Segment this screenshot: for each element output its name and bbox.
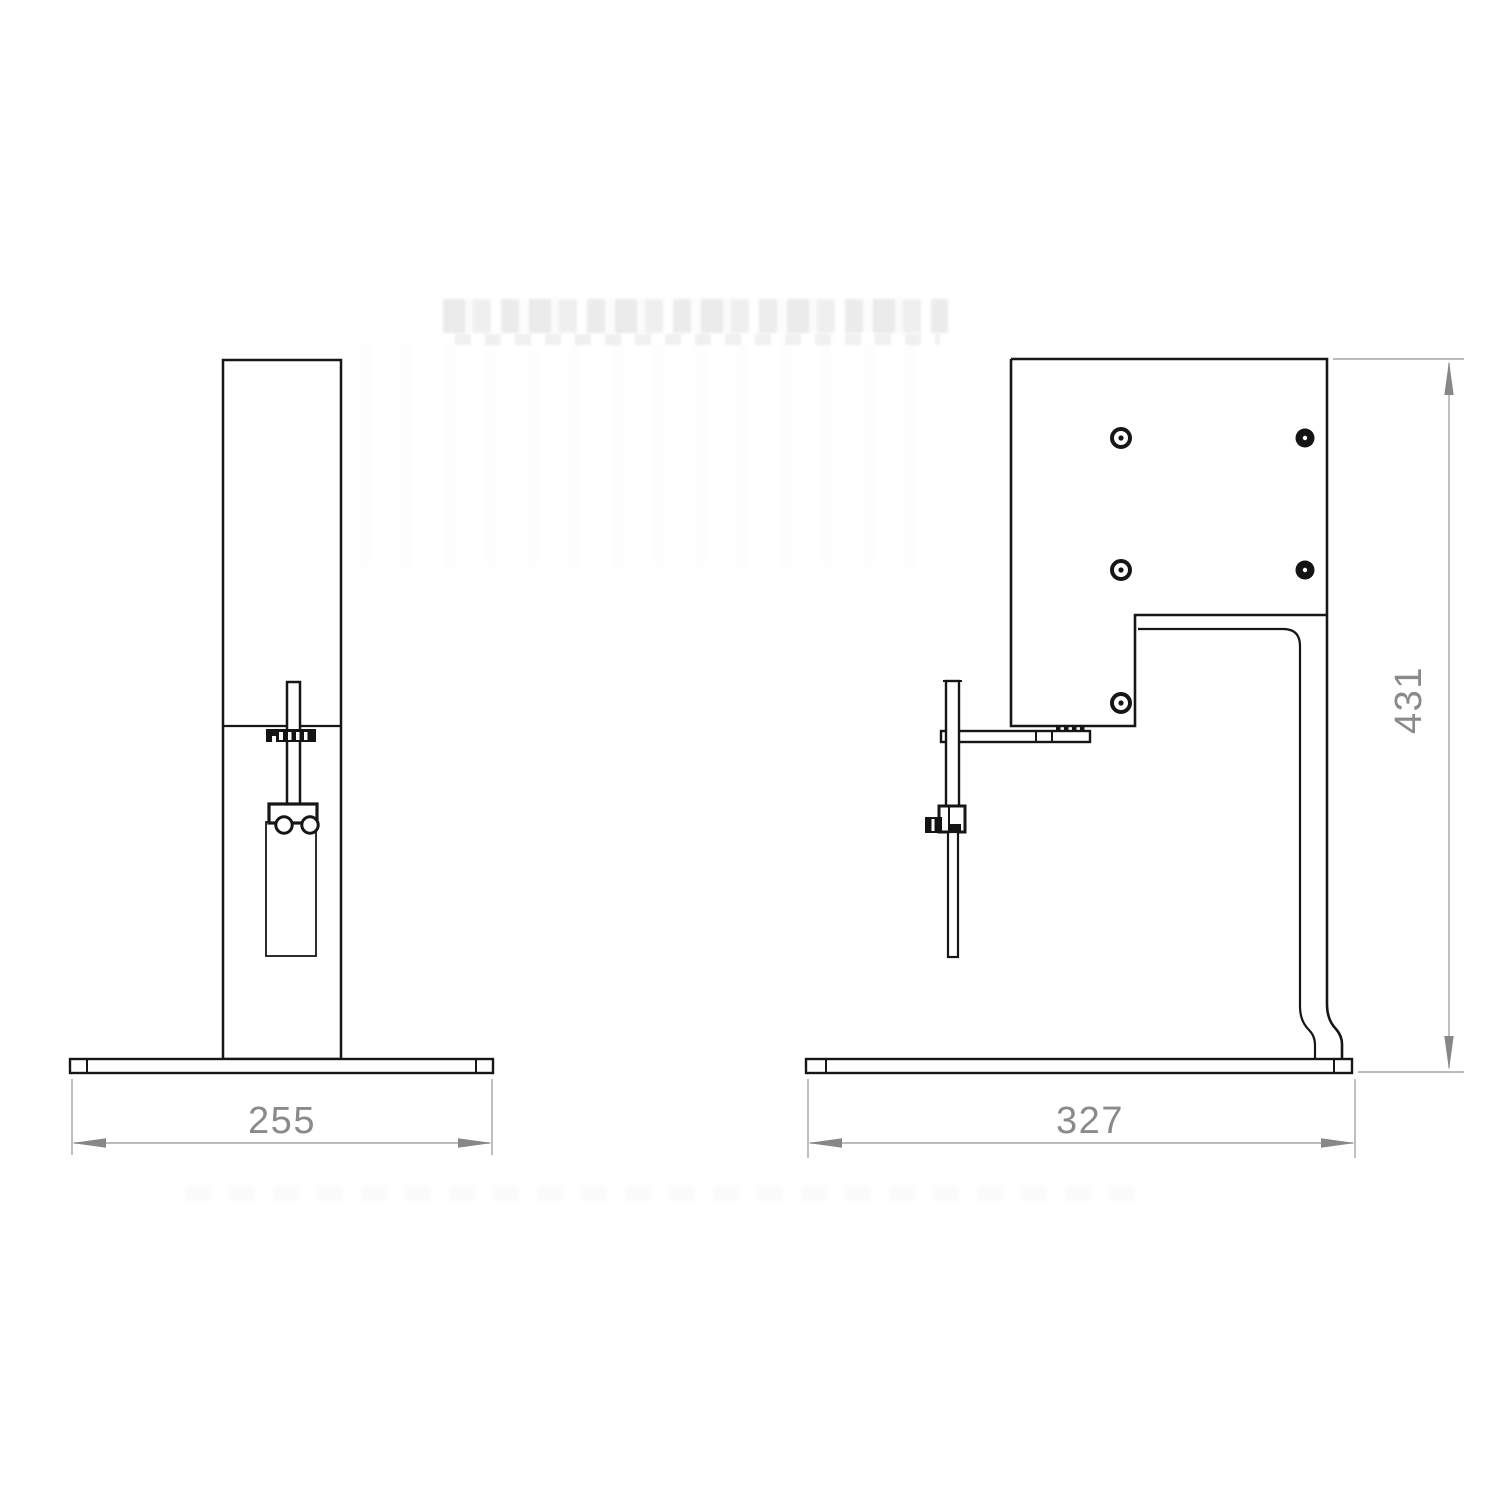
arrow-down-icon bbox=[1444, 1036, 1453, 1070]
front-base-plate bbox=[70, 1059, 493, 1073]
dimension-label-327: 327 bbox=[1056, 1100, 1124, 1142]
side-arm bbox=[941, 730, 1090, 742]
arrow-up-icon bbox=[1444, 361, 1453, 395]
front-specimen bbox=[266, 822, 316, 956]
drawing-canvas: 255 bbox=[0, 0, 1500, 1500]
arrow-right-icon bbox=[458, 1138, 492, 1147]
side-guide-rod-lower bbox=[948, 832, 958, 957]
arrow-left-icon bbox=[808, 1138, 842, 1147]
arrow-right-icon bbox=[1321, 1138, 1355, 1147]
side-view bbox=[806, 359, 1352, 1073]
side-frame-inner bbox=[1138, 629, 1315, 1059]
dimension-side-height: 431 bbox=[1333, 359, 1464, 1072]
dimension-front-width: 255 bbox=[72, 1079, 492, 1155]
cad-drawing: 255 bbox=[0, 0, 1500, 1500]
side-base-plate bbox=[806, 1059, 1352, 1073]
front-view bbox=[70, 360, 493, 1073]
arrow-left-icon bbox=[72, 1138, 106, 1147]
front-roller-right bbox=[302, 817, 318, 833]
front-mount-serrations bbox=[266, 729, 316, 742]
dimension-label-255: 255 bbox=[248, 1100, 316, 1142]
dimension-label-431: 431 bbox=[1388, 666, 1430, 734]
front-guide-rod bbox=[287, 682, 300, 805]
dimension-side-width: 327 bbox=[808, 1079, 1355, 1158]
front-roller-left bbox=[276, 817, 292, 833]
side-guide-rod-upper bbox=[946, 681, 959, 807]
